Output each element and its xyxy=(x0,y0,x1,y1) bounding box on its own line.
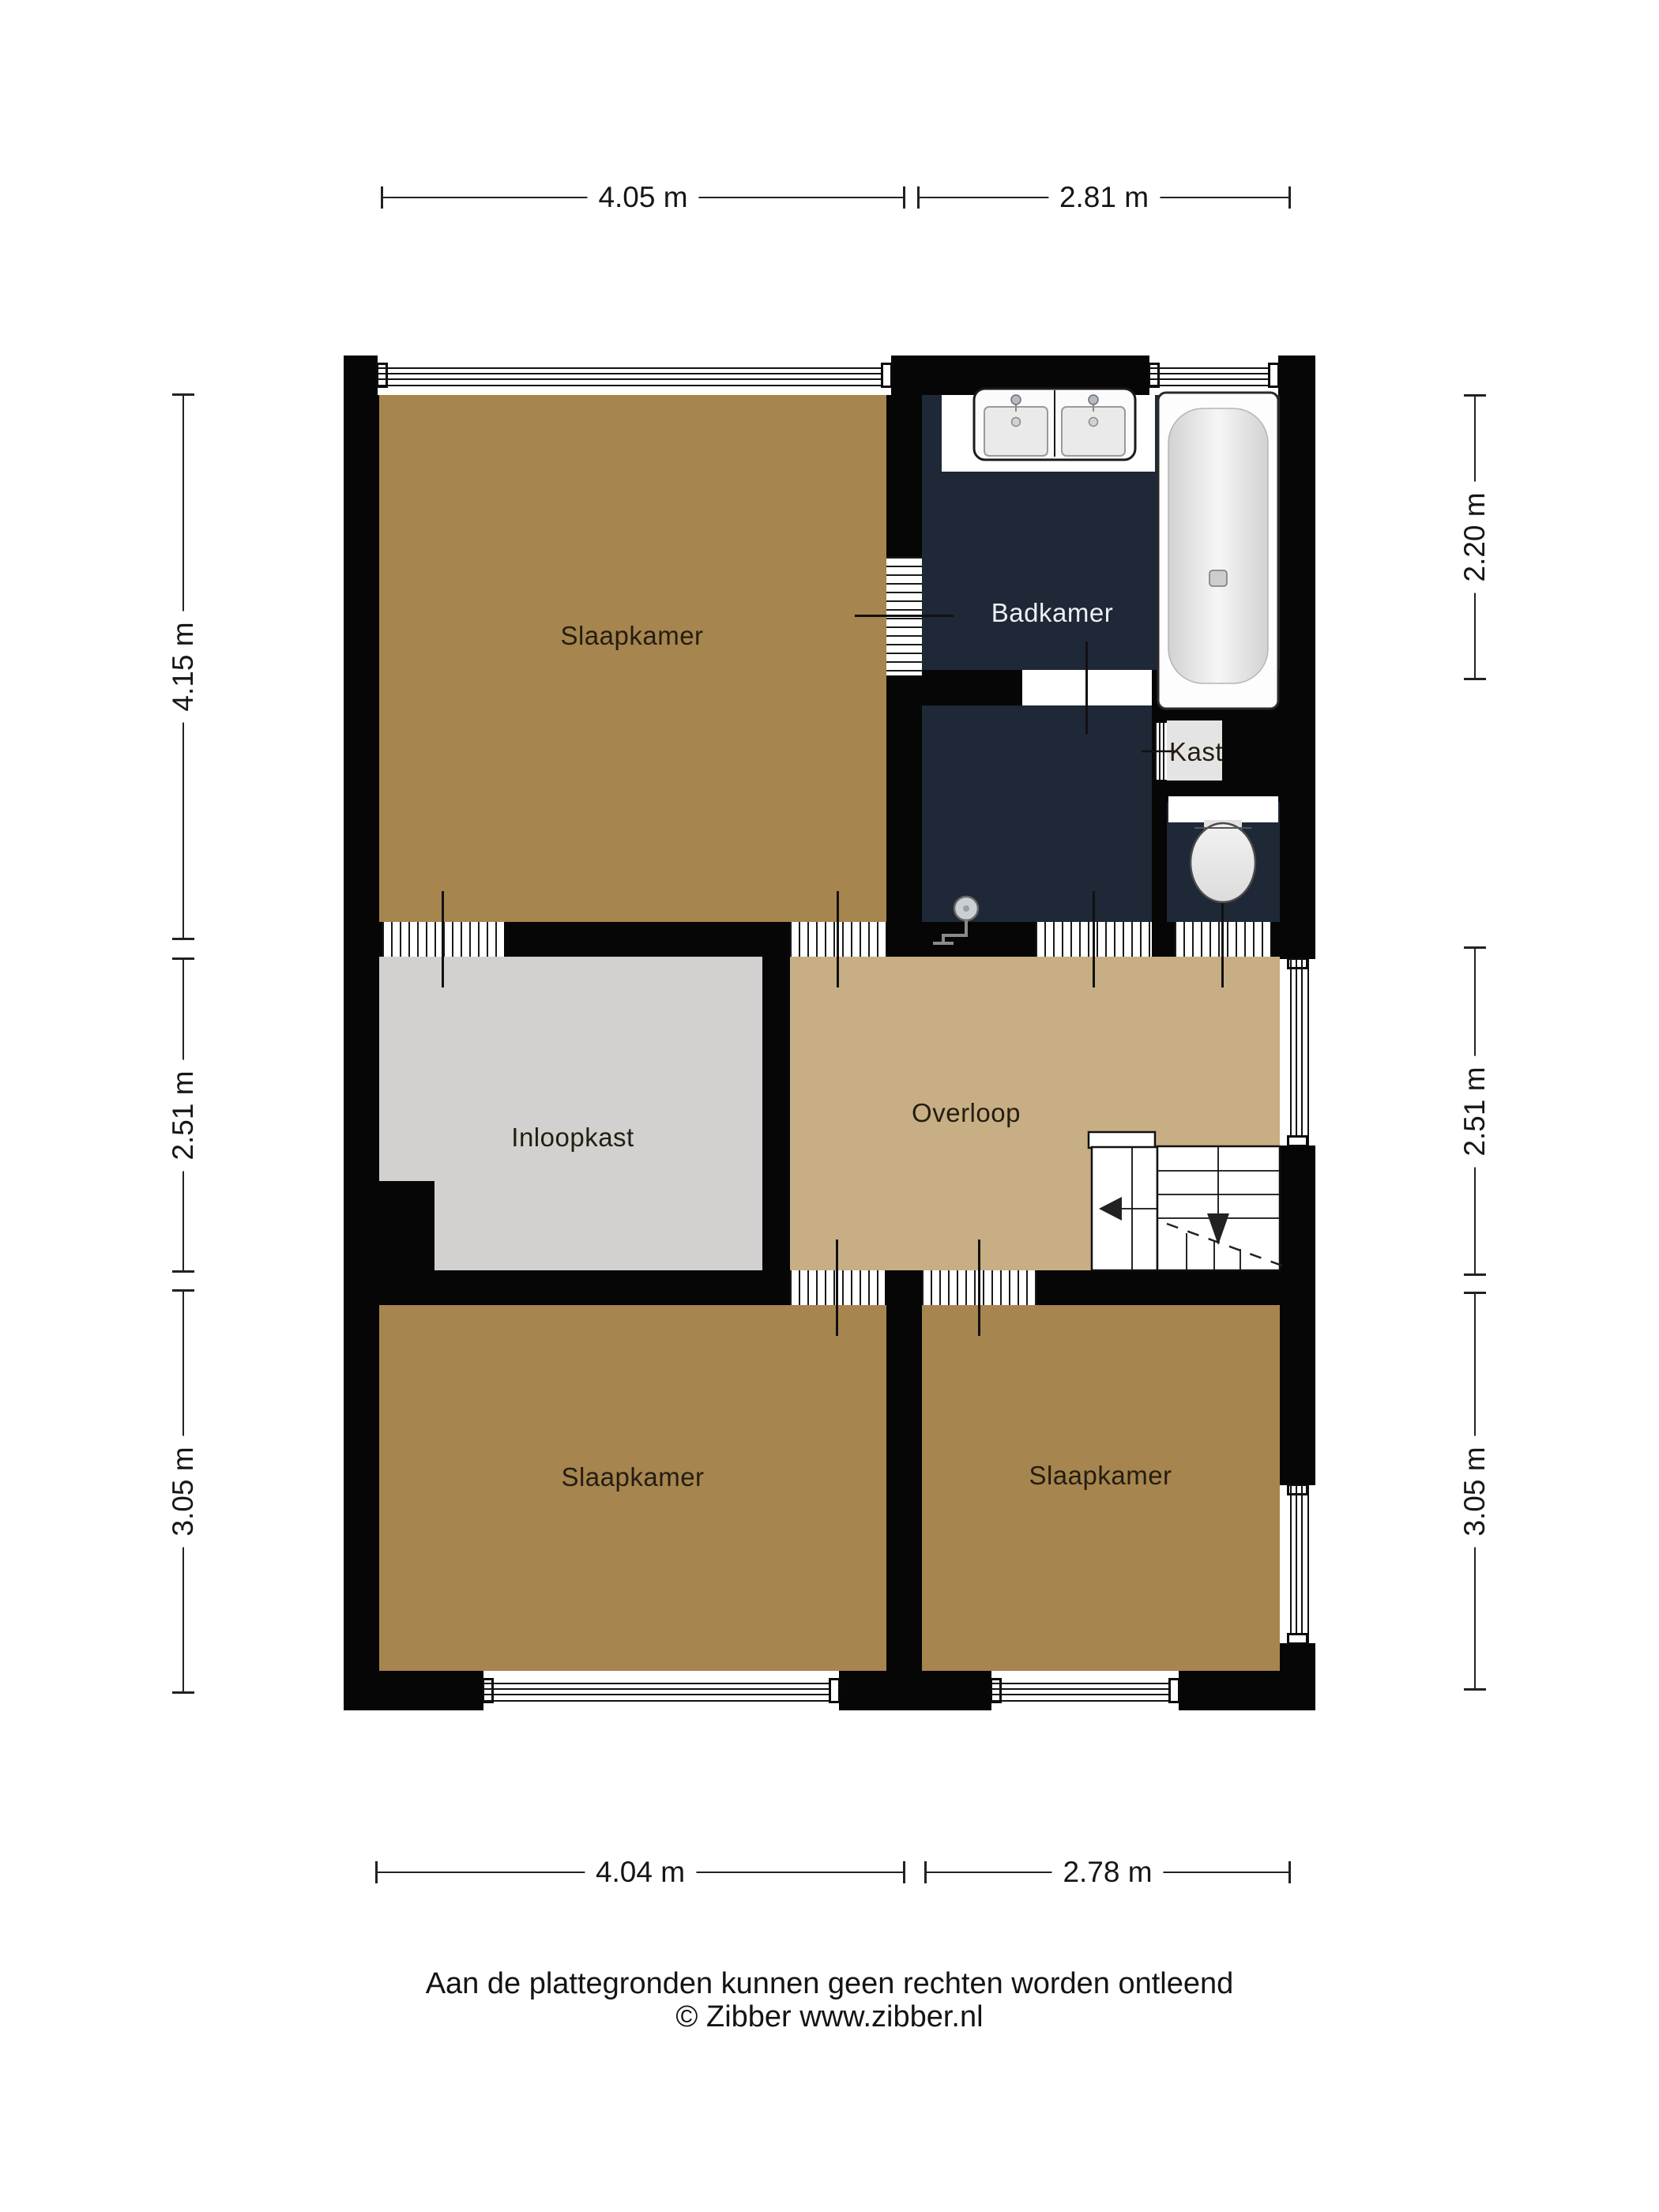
room-bathroom xyxy=(922,395,1280,670)
door-tick xyxy=(442,891,444,987)
dimension-label: 4.05 m xyxy=(587,179,698,216)
label-walk-in-closet: Inloopkast xyxy=(511,1123,634,1153)
dimension-right-2: 2.51 m xyxy=(1474,947,1476,1275)
window-bathroom-top-icon xyxy=(1149,355,1278,395)
wall-between-bedrooms xyxy=(886,1270,922,1671)
label-closet: Kast xyxy=(1169,737,1223,767)
wall-toilet-left xyxy=(1152,794,1167,922)
room-landing xyxy=(790,957,1280,1270)
room-walk-in-closet xyxy=(379,957,762,1270)
dimension-left-3: 3.05 m xyxy=(182,1290,184,1693)
dimension-label: 4.15 m xyxy=(165,611,201,722)
label-bedroom-bottom-left: Slaapkamer xyxy=(561,1462,704,1492)
wall-walkin-notch xyxy=(379,1181,434,1270)
wall-left xyxy=(344,355,379,1710)
dimension-bottom-2: 2.78 m xyxy=(925,1872,1290,1873)
dimension-label: 2.51 m xyxy=(165,1059,201,1171)
dimension-label: 2.51 m xyxy=(1457,1055,1493,1167)
wall-walkin-right xyxy=(762,957,790,1270)
label-bedroom-bottom-right: Slaapkamer xyxy=(1029,1461,1172,1491)
door-tick xyxy=(978,1240,980,1336)
footer-disclaimer: Aan de plattegronden kunnen geen rechten… xyxy=(0,1967,1659,2001)
label-bathroom: Badkamer xyxy=(991,598,1113,628)
window-bedroom-br-right-icon xyxy=(1280,1485,1315,1643)
window-landing-right-icon xyxy=(1280,959,1315,1145)
dimension-label: 2.81 m xyxy=(1048,179,1160,216)
dimension-top-1: 4.05 m xyxy=(382,197,905,198)
dimension-label: 2.20 m xyxy=(1457,481,1493,592)
room-bedroom-top-left xyxy=(379,395,886,922)
window-bedroom-br-bottom-icon xyxy=(991,1671,1179,1710)
dimension-label: 4.04 m xyxy=(585,1854,696,1890)
label-bedroom-top-left: Slaapkamer xyxy=(560,621,703,651)
dimension-left-2: 2.51 m xyxy=(182,958,184,1272)
dimension-top-2: 2.81 m xyxy=(918,197,1290,198)
dimension-right-1: 2.20 m xyxy=(1474,395,1476,679)
door-tick xyxy=(837,891,839,987)
dimension-bottom-1: 4.04 m xyxy=(376,1872,905,1873)
door-tick xyxy=(1093,891,1095,987)
door-tick xyxy=(836,1240,838,1336)
dimension-label: 2.78 m xyxy=(1051,1854,1163,1890)
window-bedroom-top-icon xyxy=(378,355,891,395)
door-shower-closet-icon xyxy=(1155,723,1167,780)
floorplan-page: Slaapkamer Badkamer Kast Inloopkast Over… xyxy=(0,0,1659,2212)
label-landing: Overloop xyxy=(912,1098,1021,1128)
room-shower-area xyxy=(922,705,1152,922)
dimension-label: 3.05 m xyxy=(165,1435,201,1547)
dimension-left-1: 4.15 m xyxy=(182,394,184,939)
door-tick xyxy=(855,615,954,617)
dimension-label: 3.05 m xyxy=(1457,1435,1493,1547)
dimension-right-3: 3.05 m xyxy=(1474,1292,1476,1690)
door-tick xyxy=(1221,891,1224,987)
footer-copyright: © Zibber www.zibber.nl xyxy=(0,2000,1659,2034)
window-bedroom-bl-bottom-icon xyxy=(483,1671,839,1710)
door-tick xyxy=(1085,641,1088,734)
